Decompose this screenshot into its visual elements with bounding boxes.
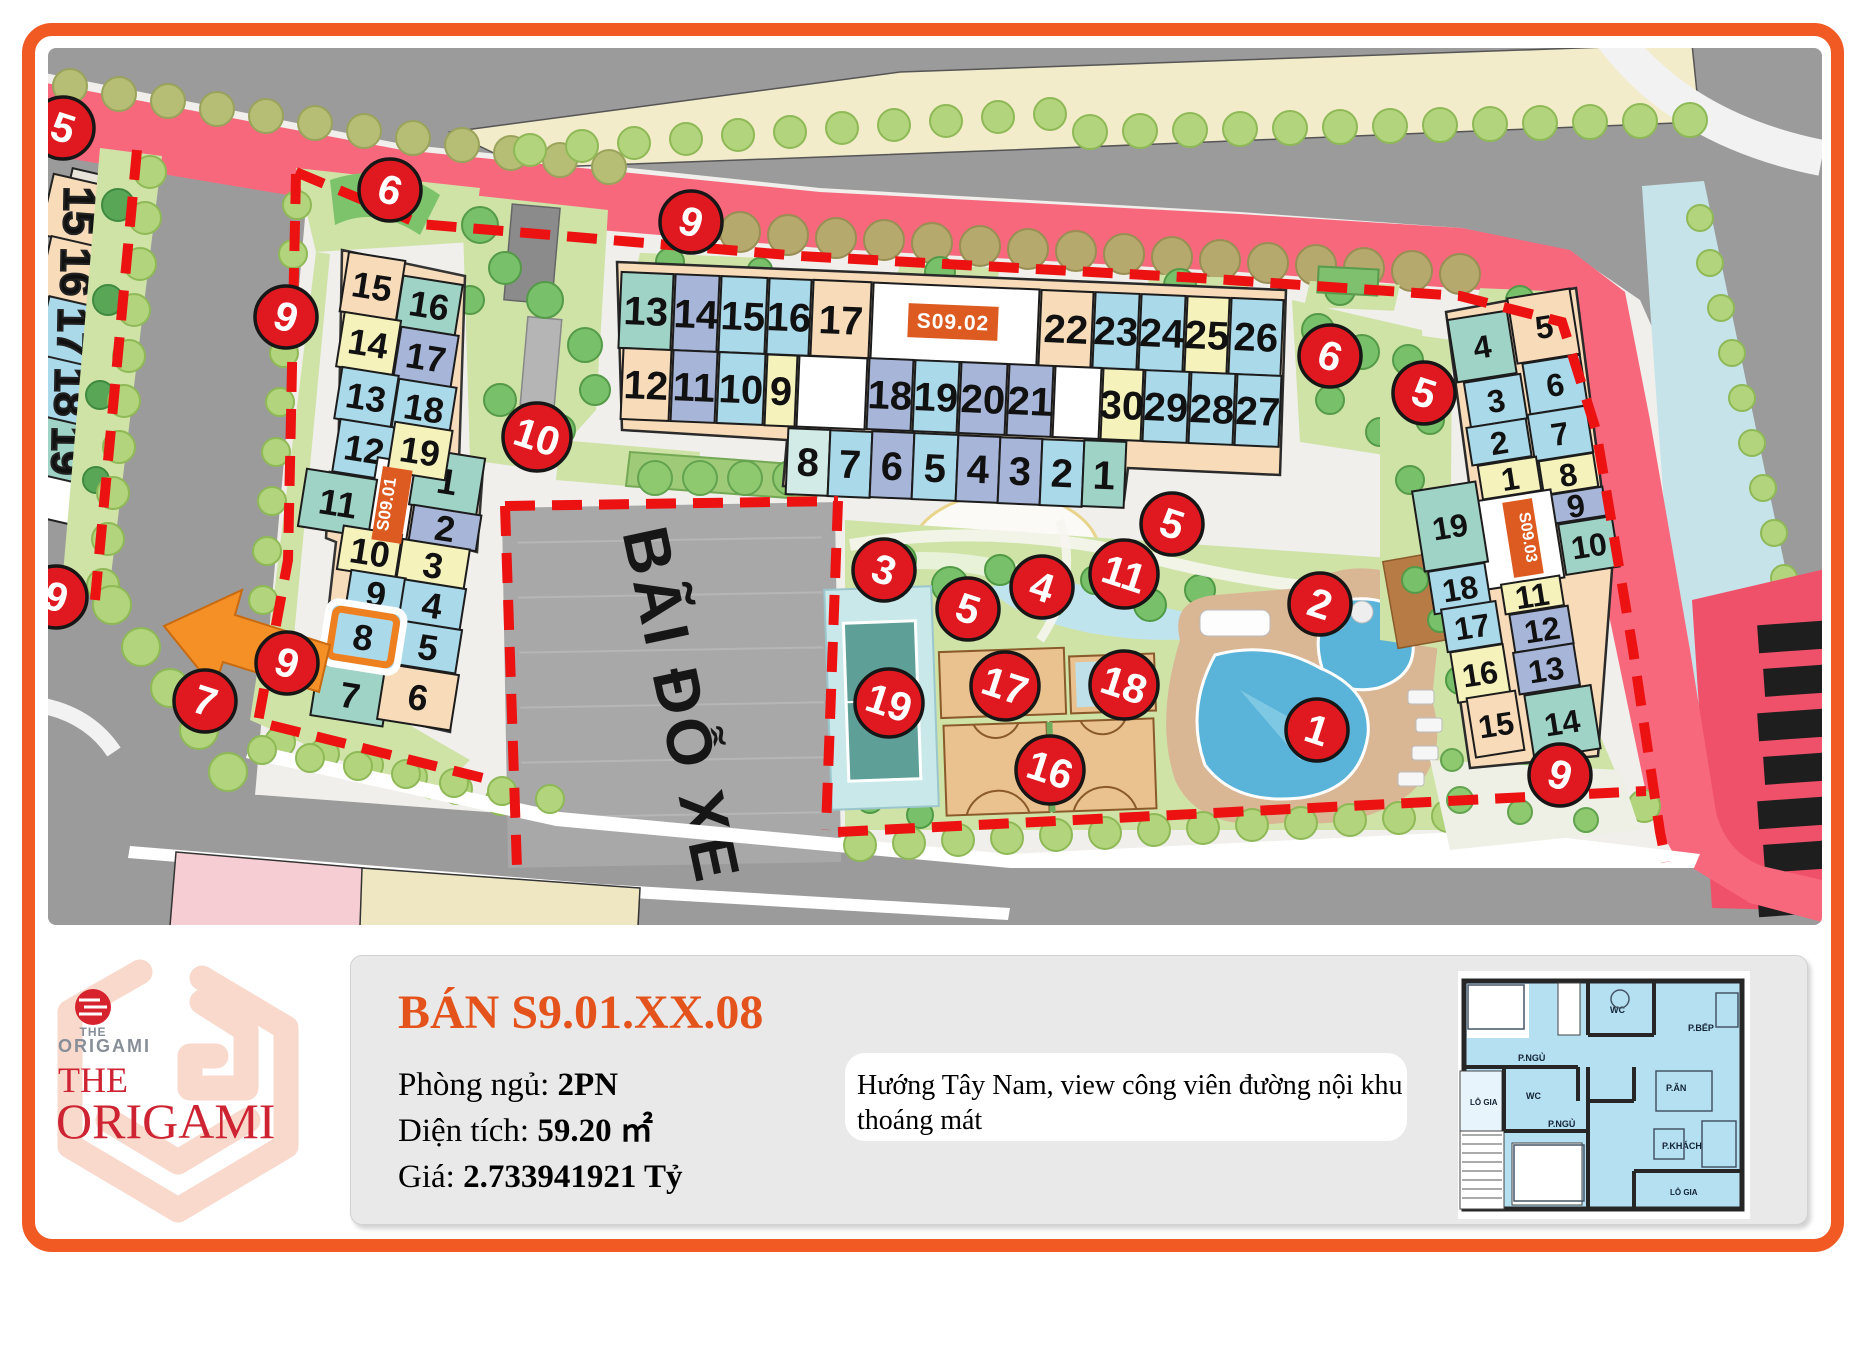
svg-text:P.NGỦ: P.NGỦ bbox=[1548, 1118, 1575, 1129]
svg-text:LÔ GIA: LÔ GIA bbox=[1670, 1188, 1698, 1197]
svg-text:LÔ GIA: LÔ GIA bbox=[1470, 1098, 1498, 1107]
svg-text:P.NGỦ: P.NGỦ bbox=[1518, 1052, 1545, 1063]
svg-text:WC: WC bbox=[1610, 1005, 1625, 1015]
svg-text:P.KHÁCH: P.KHÁCH bbox=[1662, 1141, 1702, 1151]
svg-text:P.BẾP: P.BẾP bbox=[1688, 1023, 1714, 1033]
svg-text:ORIGAMI: ORIGAMI bbox=[58, 1036, 151, 1056]
svg-text:P.ĂN: P.ĂN bbox=[1666, 1083, 1686, 1093]
svg-text:WC: WC bbox=[1526, 1091, 1541, 1101]
svg-text:ORIGAMI: ORIGAMI bbox=[56, 1093, 275, 1149]
